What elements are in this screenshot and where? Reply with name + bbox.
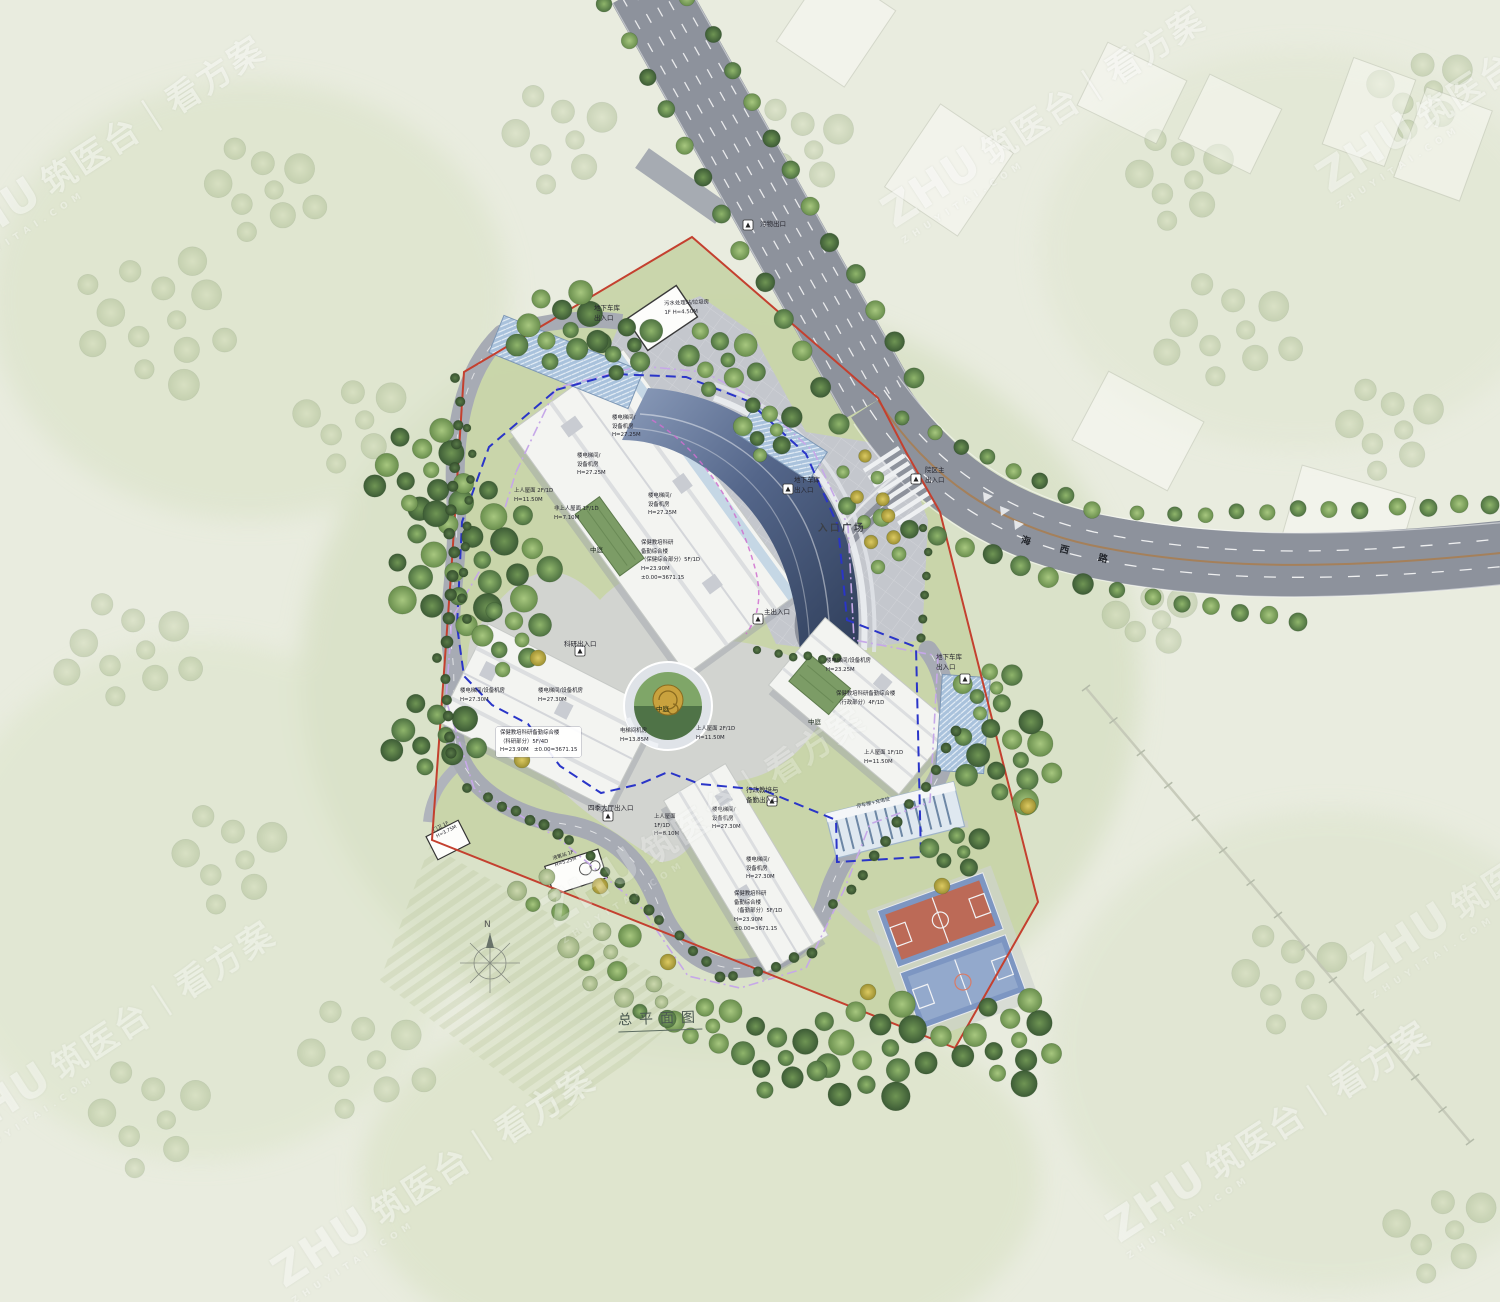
tree bbox=[781, 407, 802, 428]
tree bbox=[463, 424, 471, 432]
door-arrow-icon bbox=[575, 646, 585, 656]
tree bbox=[412, 737, 430, 755]
tree bbox=[1038, 567, 1059, 588]
door-arrow-icon bbox=[767, 796, 777, 806]
tree bbox=[515, 633, 529, 647]
tree bbox=[931, 765, 941, 775]
tree bbox=[618, 924, 641, 947]
tree bbox=[97, 299, 125, 327]
tree bbox=[871, 471, 884, 484]
tree bbox=[1001, 665, 1022, 686]
tree bbox=[990, 682, 1003, 695]
tree bbox=[866, 301, 886, 321]
tree bbox=[443, 711, 453, 721]
tree bbox=[593, 923, 611, 941]
tree bbox=[1157, 211, 1177, 231]
tree bbox=[983, 544, 1003, 564]
tree bbox=[804, 141, 823, 160]
tree bbox=[750, 431, 765, 446]
tree bbox=[293, 400, 321, 428]
tree bbox=[569, 280, 593, 304]
tree bbox=[1266, 1015, 1286, 1035]
tree bbox=[1252, 925, 1274, 947]
tree bbox=[1167, 507, 1182, 522]
tree bbox=[1416, 1264, 1436, 1284]
tree bbox=[992, 784, 1009, 801]
tree bbox=[615, 878, 625, 888]
tree bbox=[517, 314, 541, 338]
tree bbox=[446, 505, 457, 516]
tree bbox=[592, 878, 608, 894]
tree bbox=[857, 515, 870, 528]
tree bbox=[1027, 1010, 1053, 1036]
tree bbox=[963, 1023, 987, 1047]
tree bbox=[285, 154, 315, 184]
tree bbox=[820, 233, 839, 252]
tree bbox=[818, 655, 827, 664]
tree bbox=[391, 1020, 421, 1050]
tree bbox=[583, 976, 598, 991]
tree bbox=[885, 332, 905, 352]
tree bbox=[630, 352, 650, 372]
tree bbox=[1145, 589, 1161, 605]
tree bbox=[734, 333, 757, 356]
tree bbox=[1191, 273, 1213, 295]
tree bbox=[1010, 556, 1030, 576]
tree bbox=[1389, 498, 1406, 515]
tree bbox=[505, 612, 523, 630]
tree bbox=[461, 542, 470, 551]
door-arrow-icon bbox=[743, 220, 753, 230]
tree bbox=[756, 273, 775, 292]
tree bbox=[70, 629, 98, 657]
tree bbox=[445, 589, 457, 601]
tree bbox=[553, 829, 564, 840]
tree bbox=[1481, 496, 1499, 514]
tree bbox=[490, 527, 518, 555]
tree bbox=[1260, 606, 1278, 624]
tree bbox=[1362, 433, 1383, 454]
tree bbox=[388, 586, 416, 614]
tree bbox=[881, 1082, 910, 1111]
tree bbox=[678, 345, 700, 367]
tree bbox=[163, 1136, 189, 1162]
tree bbox=[993, 694, 1011, 712]
tree bbox=[852, 1051, 871, 1070]
tree bbox=[1027, 731, 1053, 757]
tree bbox=[1259, 505, 1275, 521]
tree bbox=[1259, 291, 1289, 321]
tree bbox=[355, 411, 374, 430]
tree bbox=[106, 687, 126, 707]
tree bbox=[837, 466, 850, 479]
tree bbox=[1013, 752, 1029, 768]
tree bbox=[709, 1034, 729, 1054]
tree bbox=[119, 1126, 140, 1147]
tree bbox=[762, 406, 778, 422]
tree bbox=[627, 338, 641, 352]
tree bbox=[815, 1012, 834, 1031]
tree bbox=[1200, 335, 1221, 356]
tree bbox=[917, 634, 926, 643]
tree bbox=[789, 653, 797, 661]
tree bbox=[200, 864, 221, 885]
tree bbox=[563, 322, 579, 338]
tree bbox=[870, 1014, 892, 1036]
tree bbox=[711, 332, 729, 350]
tree bbox=[446, 748, 457, 759]
tree bbox=[1442, 55, 1472, 85]
tree bbox=[846, 1002, 866, 1022]
tree bbox=[957, 846, 970, 859]
tree bbox=[1017, 768, 1039, 790]
tree bbox=[600, 867, 610, 877]
tree bbox=[420, 594, 443, 617]
tree bbox=[915, 1052, 937, 1074]
tree bbox=[618, 318, 636, 336]
tree bbox=[701, 382, 716, 397]
tree bbox=[850, 490, 863, 503]
tree bbox=[136, 641, 155, 660]
tree bbox=[807, 948, 818, 959]
door-arrow-icon bbox=[911, 474, 921, 484]
tree bbox=[676, 137, 694, 155]
tree bbox=[430, 418, 454, 442]
tree bbox=[767, 1028, 787, 1048]
tree bbox=[934, 878, 950, 894]
tree bbox=[542, 353, 559, 370]
tree bbox=[697, 362, 713, 378]
tree bbox=[91, 593, 113, 615]
tree bbox=[1289, 613, 1307, 631]
tree bbox=[297, 1039, 325, 1067]
tree bbox=[869, 851, 879, 861]
tree bbox=[303, 195, 327, 219]
tree bbox=[1221, 289, 1244, 312]
tree bbox=[973, 707, 987, 721]
tree bbox=[1351, 502, 1368, 519]
tree bbox=[192, 805, 214, 827]
tree bbox=[507, 881, 526, 900]
tree bbox=[660, 954, 676, 970]
tree bbox=[1198, 508, 1213, 523]
tree bbox=[1232, 959, 1260, 987]
tree bbox=[180, 1080, 210, 1110]
tree bbox=[1466, 1193, 1496, 1223]
tree bbox=[655, 996, 668, 1009]
tree bbox=[423, 462, 439, 478]
tree bbox=[989, 1065, 1006, 1082]
tree bbox=[447, 570, 459, 582]
tree bbox=[765, 99, 787, 121]
tree bbox=[364, 475, 386, 497]
tree bbox=[753, 448, 767, 462]
tree bbox=[213, 328, 237, 352]
tree bbox=[374, 1077, 400, 1103]
tree bbox=[744, 94, 761, 111]
tree bbox=[752, 1060, 770, 1078]
tree bbox=[1072, 573, 1093, 594]
tree bbox=[548, 889, 561, 902]
tree bbox=[1394, 421, 1413, 440]
tree bbox=[644, 905, 655, 916]
tree bbox=[444, 732, 455, 743]
tree bbox=[904, 799, 914, 809]
tree bbox=[54, 659, 81, 686]
tree bbox=[782, 161, 800, 179]
tree bbox=[449, 547, 461, 559]
tree bbox=[1355, 379, 1377, 401]
tree bbox=[491, 642, 507, 658]
tree bbox=[1018, 988, 1042, 1012]
tree bbox=[882, 1039, 899, 1056]
tree bbox=[466, 475, 474, 483]
tree bbox=[128, 326, 149, 347]
tree bbox=[1171, 142, 1194, 165]
tree bbox=[270, 202, 296, 228]
tree bbox=[320, 1001, 342, 1023]
tree bbox=[771, 962, 781, 972]
tree bbox=[265, 181, 284, 200]
tree bbox=[571, 154, 597, 180]
tree bbox=[782, 1067, 804, 1089]
tree bbox=[1202, 597, 1219, 614]
tree bbox=[828, 1083, 851, 1106]
tree bbox=[335, 1099, 355, 1119]
tree bbox=[251, 152, 274, 175]
tree bbox=[775, 650, 783, 658]
tree bbox=[1015, 1049, 1037, 1071]
tree bbox=[537, 556, 563, 582]
tree bbox=[352, 1017, 375, 1040]
tree bbox=[607, 961, 627, 981]
tree bbox=[237, 222, 257, 242]
tree bbox=[985, 1042, 1003, 1060]
tree bbox=[900, 520, 918, 538]
tree bbox=[614, 988, 633, 1007]
tree bbox=[392, 718, 416, 742]
tree bbox=[412, 1068, 436, 1092]
tree bbox=[609, 365, 624, 380]
tree bbox=[1381, 392, 1404, 415]
tree bbox=[1020, 798, 1036, 814]
tree bbox=[526, 897, 541, 912]
tree bbox=[920, 591, 929, 600]
tree bbox=[167, 311, 186, 330]
tree bbox=[1130, 506, 1144, 520]
tree bbox=[135, 360, 155, 380]
tree bbox=[881, 509, 895, 523]
tree bbox=[753, 967, 763, 977]
tree bbox=[1002, 730, 1022, 750]
tree bbox=[412, 439, 432, 459]
tree bbox=[389, 554, 407, 572]
tree bbox=[1229, 504, 1244, 519]
tree bbox=[577, 301, 603, 327]
tree bbox=[510, 585, 537, 612]
tree bbox=[753, 646, 761, 654]
tree bbox=[447, 481, 458, 492]
tree bbox=[859, 450, 872, 463]
tree bbox=[931, 1026, 952, 1047]
tree bbox=[157, 1111, 176, 1130]
tree bbox=[1290, 500, 1306, 516]
tree bbox=[367, 1051, 386, 1070]
tree bbox=[88, 1099, 116, 1127]
tree bbox=[463, 522, 472, 531]
tree bbox=[328, 1066, 349, 1087]
tree bbox=[586, 851, 596, 861]
tree bbox=[721, 353, 735, 367]
tree bbox=[809, 162, 835, 188]
tree bbox=[522, 85, 544, 107]
tree bbox=[1413, 394, 1443, 424]
tree bbox=[1000, 1009, 1020, 1029]
tree bbox=[506, 334, 528, 356]
tree bbox=[179, 657, 203, 681]
tree bbox=[1032, 473, 1048, 489]
tree bbox=[1296, 971, 1315, 990]
tree bbox=[892, 817, 903, 828]
tree bbox=[522, 538, 543, 559]
tree bbox=[236, 851, 255, 870]
tree bbox=[444, 528, 455, 539]
tree bbox=[152, 277, 175, 300]
tree bbox=[694, 168, 712, 186]
tree bbox=[1260, 984, 1281, 1005]
tree bbox=[654, 915, 664, 925]
tree bbox=[789, 952, 799, 962]
tree bbox=[920, 839, 939, 858]
north-label: N bbox=[484, 920, 491, 930]
tree bbox=[408, 565, 432, 589]
tree bbox=[452, 706, 478, 732]
tree bbox=[474, 551, 491, 568]
tree bbox=[955, 538, 974, 557]
tree bbox=[1156, 628, 1182, 654]
tree bbox=[604, 945, 618, 959]
tree bbox=[895, 411, 909, 425]
tree bbox=[1041, 1043, 1061, 1063]
tree bbox=[453, 420, 463, 430]
tree bbox=[1279, 337, 1303, 361]
tree bbox=[793, 1029, 819, 1055]
tree bbox=[1042, 763, 1062, 783]
tree bbox=[587, 102, 617, 132]
tree bbox=[231, 194, 252, 215]
tree bbox=[159, 611, 189, 641]
tree bbox=[966, 743, 990, 767]
tree bbox=[110, 1062, 132, 1084]
tree bbox=[443, 612, 455, 624]
tree bbox=[1152, 611, 1171, 630]
tree bbox=[871, 560, 885, 574]
tree bbox=[401, 495, 418, 512]
tree bbox=[525, 815, 536, 826]
central-circular-atrium bbox=[624, 662, 712, 750]
tree bbox=[121, 609, 144, 632]
tree bbox=[1367, 461, 1387, 481]
tree bbox=[257, 822, 287, 852]
tree bbox=[919, 524, 927, 532]
tree bbox=[858, 870, 868, 880]
tree bbox=[479, 481, 497, 499]
tree bbox=[918, 615, 927, 624]
tree bbox=[889, 991, 916, 1018]
tree bbox=[125, 1158, 145, 1178]
tree bbox=[441, 636, 453, 648]
tree bbox=[1109, 582, 1125, 598]
tree bbox=[119, 260, 141, 282]
tree bbox=[1084, 502, 1101, 519]
tree bbox=[528, 613, 551, 636]
tree bbox=[1335, 410, 1363, 438]
tree bbox=[511, 806, 521, 816]
tree bbox=[449, 462, 460, 473]
tree bbox=[880, 836, 891, 847]
tree bbox=[417, 759, 434, 776]
tree bbox=[450, 373, 460, 383]
tree bbox=[455, 397, 465, 407]
site-plan-canvas: 地下车库 出入口 污水处理站/垃圾房 1F H=4.50M 污物出口 院区主 出… bbox=[0, 0, 1500, 1302]
tree bbox=[538, 332, 556, 350]
tree bbox=[745, 398, 760, 413]
tree bbox=[566, 338, 588, 360]
tree bbox=[810, 377, 830, 397]
tree bbox=[551, 903, 569, 921]
tree bbox=[658, 100, 675, 117]
tree bbox=[1170, 309, 1198, 337]
tree bbox=[532, 290, 551, 309]
tree bbox=[192, 280, 222, 310]
tree bbox=[954, 440, 969, 455]
tree bbox=[427, 479, 449, 501]
tree bbox=[941, 743, 951, 753]
tree bbox=[675, 931, 685, 941]
tree bbox=[566, 131, 585, 150]
tree bbox=[408, 525, 427, 544]
tree bbox=[172, 839, 200, 867]
tree bbox=[495, 662, 510, 677]
tree bbox=[465, 496, 474, 505]
tree bbox=[551, 100, 574, 123]
tree bbox=[1019, 710, 1043, 734]
tree bbox=[1206, 367, 1226, 387]
tree bbox=[564, 835, 574, 845]
tree bbox=[1399, 442, 1425, 468]
tree bbox=[326, 454, 346, 474]
tree bbox=[587, 330, 609, 352]
tree bbox=[178, 247, 207, 276]
tree bbox=[206, 895, 226, 915]
tree bbox=[1189, 192, 1215, 218]
tree bbox=[970, 689, 985, 704]
tree bbox=[1445, 1221, 1464, 1240]
tree bbox=[857, 1076, 875, 1094]
master-plan-drawing bbox=[0, 0, 1500, 1302]
tree bbox=[804, 652, 813, 661]
tree bbox=[823, 114, 853, 144]
tree bbox=[204, 170, 232, 198]
tree bbox=[1450, 495, 1468, 513]
tree bbox=[801, 197, 819, 215]
tree bbox=[688, 946, 698, 956]
tree bbox=[701, 956, 711, 966]
tree bbox=[1102, 601, 1130, 629]
tree bbox=[462, 783, 472, 793]
tree bbox=[221, 820, 244, 843]
tree bbox=[928, 425, 943, 440]
